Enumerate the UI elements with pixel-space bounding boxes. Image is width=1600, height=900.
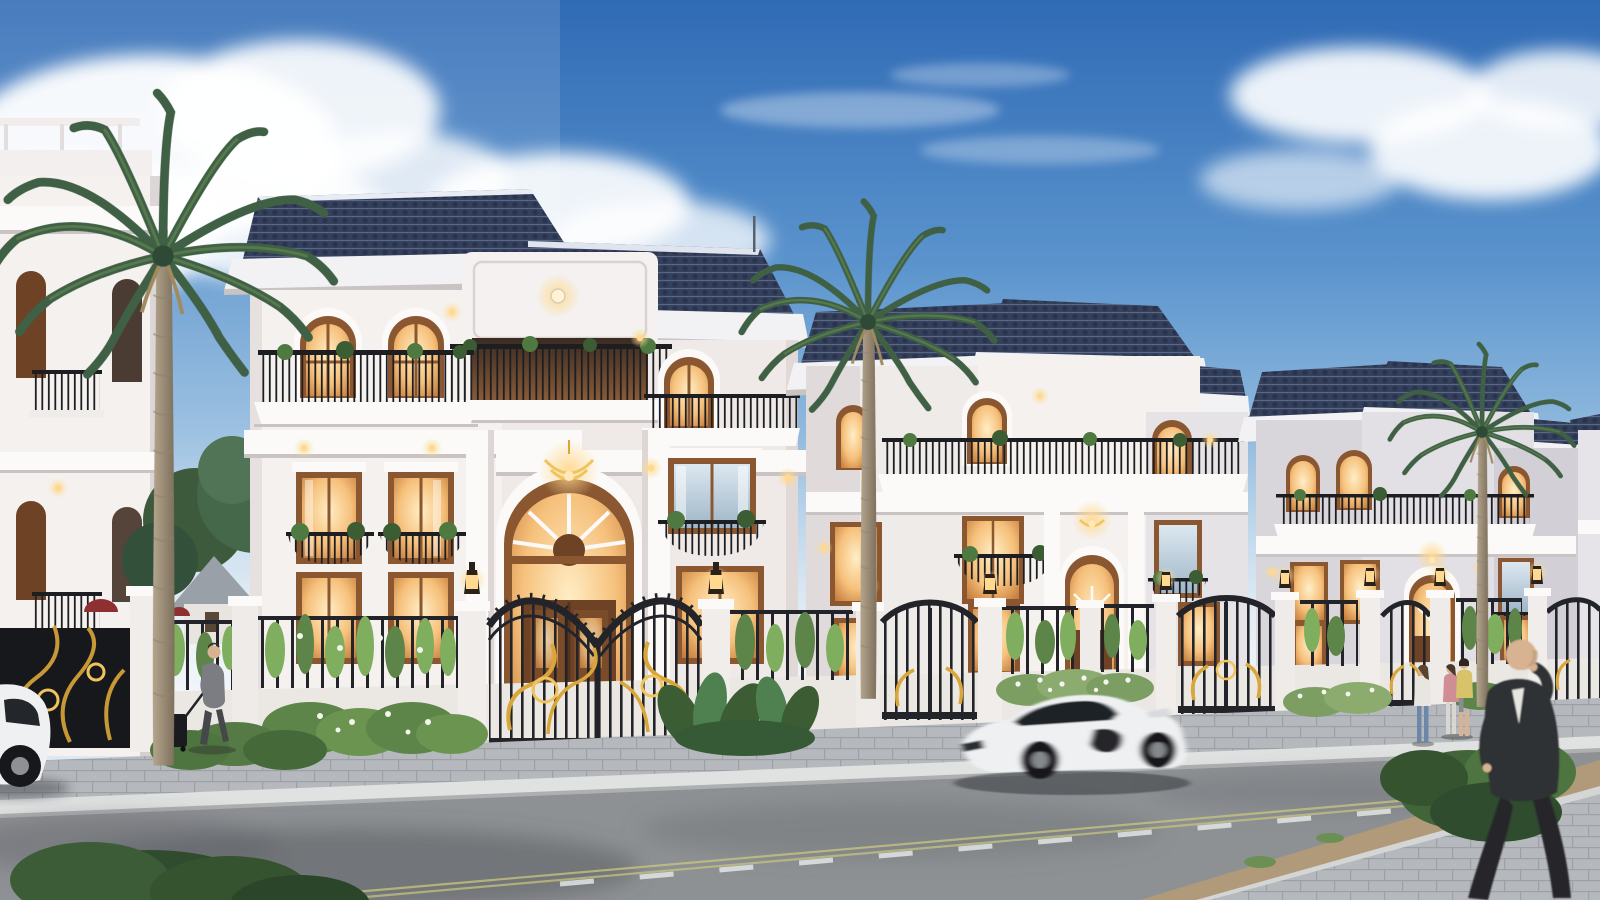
villa2-chandelier [1072, 500, 1112, 540]
ceiling-downlight [551, 289, 565, 303]
scene-canvas [0, 0, 1600, 900]
gate-2-villa2 [880, 596, 980, 724]
gate-5-partial [1545, 592, 1600, 704]
villa1-left-balcony-railing [262, 352, 470, 404]
architectural-render-scene [0, 0, 1600, 900]
villa1-center-balcony-railing [452, 346, 668, 402]
side-intake [1090, 729, 1122, 752]
villa1-chandelier [539, 440, 599, 500]
gate-3-villa3 [1176, 592, 1278, 716]
bald-head [1506, 640, 1537, 671]
